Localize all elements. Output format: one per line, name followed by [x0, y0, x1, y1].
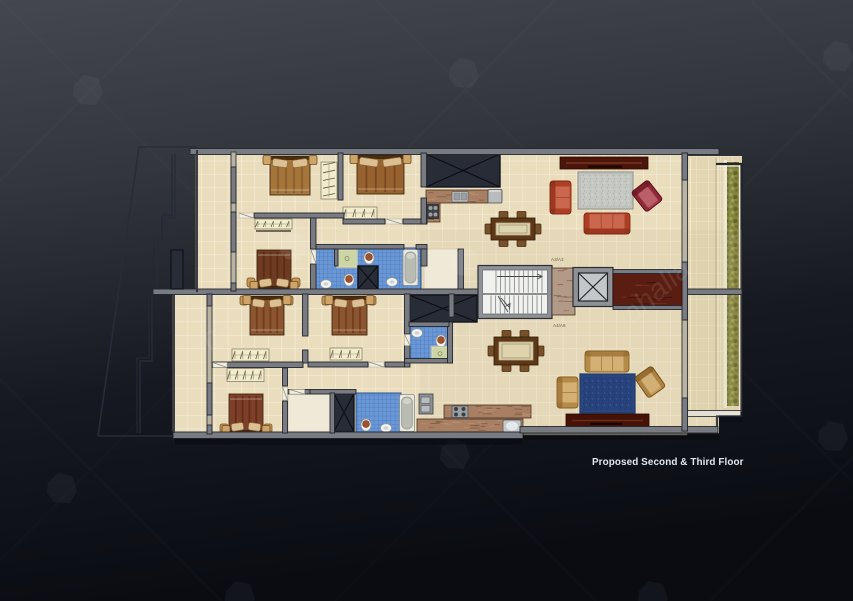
svg-text:Proposed Second & Third Floor: Proposed Second & Third Floor — [592, 457, 744, 468]
svg-text:A3/A3: A3/A3 — [551, 257, 564, 262]
svg-text:A4/A6: A4/A6 — [553, 323, 566, 328]
